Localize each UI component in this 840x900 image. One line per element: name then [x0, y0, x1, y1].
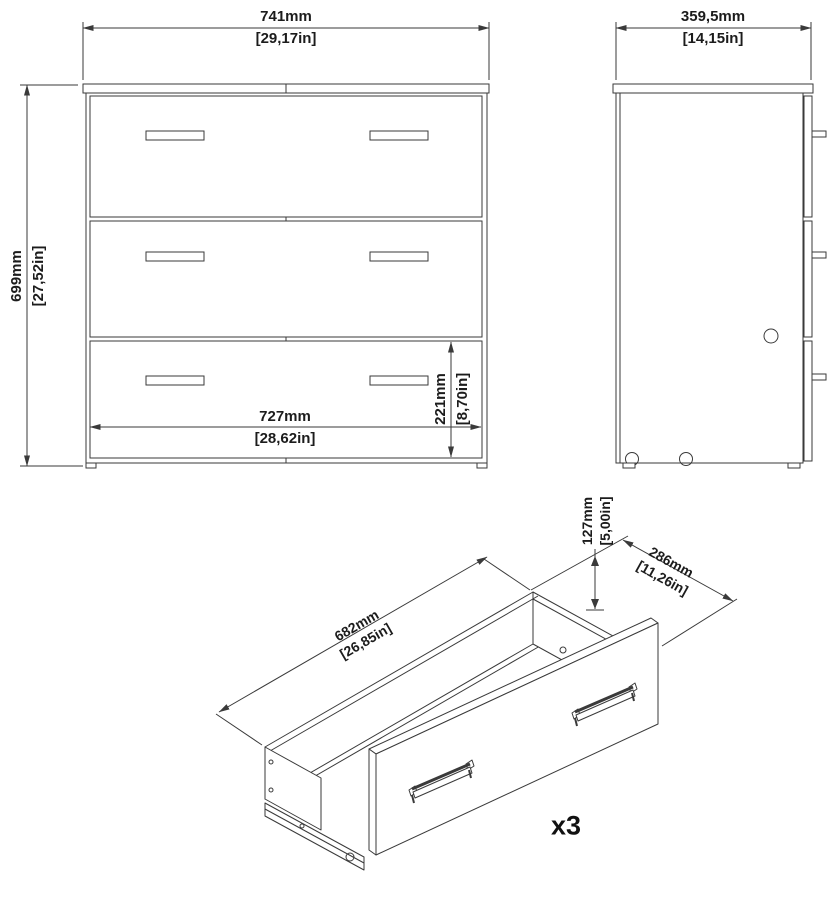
side-handle-stub-3	[812, 374, 826, 380]
label-front-height-in: [27,52in]	[28, 246, 50, 307]
front-handle-d3-right	[370, 376, 428, 385]
label-front-inner-width: 727mm [28,62in]	[255, 406, 316, 450]
side-drawer-front-3	[804, 341, 812, 461]
drawer-quantity-label: x3	[551, 811, 581, 842]
label-front-height-mm: 699mm	[6, 246, 28, 307]
side-foot-right	[788, 463, 800, 468]
label-side-depth-in: [14,15in]	[681, 28, 745, 50]
technical-drawing-page: 741mm [29,17in] 359,5mm [14,15in] 699mm …	[0, 0, 840, 900]
label-front-width-in: [29,17in]	[256, 28, 317, 50]
side-top-panel	[613, 84, 813, 93]
label-front-inner-width-in: [28,62in]	[255, 428, 316, 450]
front-handle-d3-left	[146, 376, 204, 385]
label-side-depth: 359,5mm [14,15in]	[681, 6, 745, 50]
label-front-width: 741mm [29,17in]	[256, 6, 317, 50]
front-foot-left	[86, 463, 96, 468]
label-front-height: 699mm [27,52in]	[6, 246, 50, 307]
side-drawer-front-1	[804, 96, 812, 217]
label-front-drawer-height-in: [8,70in]	[452, 373, 474, 426]
side-handle-stub-2	[812, 252, 826, 258]
front-handle-d2-right	[370, 252, 428, 261]
label-drawer-height: 127mm [5,00in]	[578, 496, 614, 545]
label-front-drawer-height-mm: 221mm	[430, 373, 452, 426]
label-side-depth-mm: 359,5mm	[681, 6, 745, 28]
label-front-inner-width-mm: 727mm	[255, 406, 316, 428]
side-foot-left	[623, 463, 635, 468]
label-front-width-mm: 741mm	[256, 6, 317, 28]
label-front-drawer-height: 221mm [8,70in]	[430, 373, 474, 426]
front-handle-d2-left	[146, 252, 204, 261]
side-handle-stub-1	[812, 131, 826, 137]
front-drawer-2	[90, 221, 482, 337]
front-foot-right	[477, 463, 487, 468]
side-body-panel	[616, 93, 803, 463]
drawing-linework	[0, 0, 840, 900]
front-drawer-1	[90, 96, 482, 217]
front-handle-d1-right	[370, 131, 428, 140]
side-view	[613, 22, 826, 468]
side-drawer-front-2	[804, 221, 812, 337]
label-drawer-height-in: [5,00in]	[596, 496, 614, 545]
front-handle-d1-left	[146, 131, 204, 140]
front-view	[20, 22, 489, 468]
label-drawer-height-mm: 127mm	[578, 496, 596, 545]
